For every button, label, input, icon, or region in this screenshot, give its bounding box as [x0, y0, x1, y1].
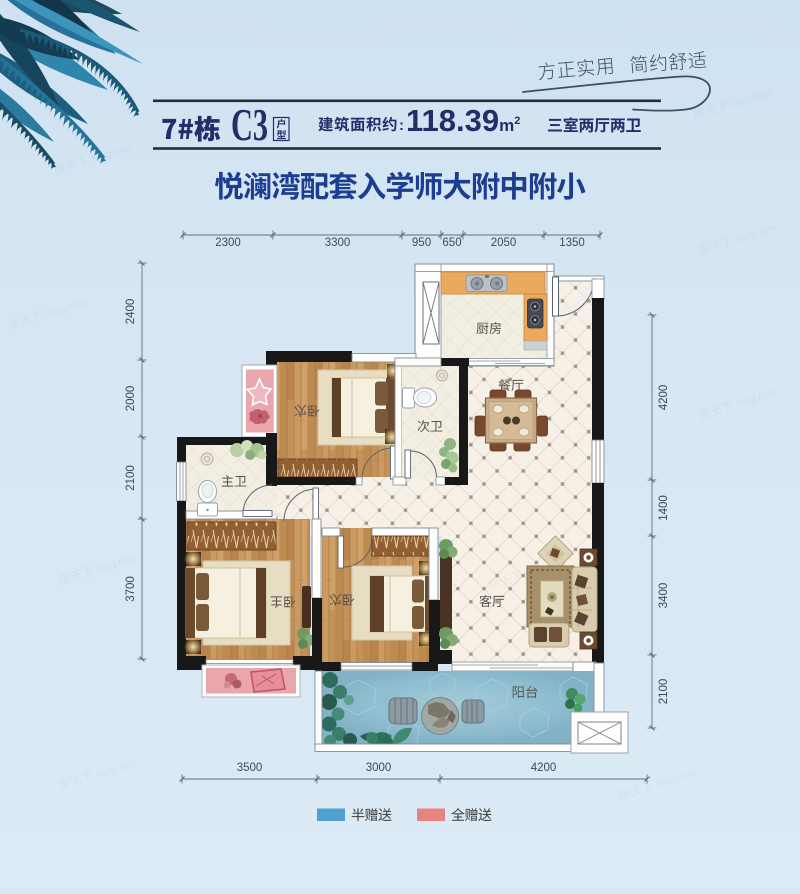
svg-text:2300: 2300: [215, 237, 241, 249]
svg-text:2050: 2050: [491, 237, 517, 249]
svg-text:3700: 3700: [125, 576, 137, 602]
svg-text:1400: 1400: [658, 495, 670, 521]
svg-text:2000: 2000: [125, 386, 137, 412]
svg-text:4200: 4200: [658, 385, 670, 411]
svg-text:3300: 3300: [325, 237, 351, 249]
svg-text:C3: C3: [231, 100, 268, 150]
svg-text:3400: 3400: [658, 583, 670, 609]
svg-text:650: 650: [442, 237, 461, 249]
svg-text:2400: 2400: [125, 299, 137, 325]
svg-text:2100: 2100: [125, 465, 137, 491]
svg-text:2100: 2100: [658, 679, 670, 705]
svg-text:950: 950: [412, 237, 431, 249]
svg-text:4200: 4200: [531, 762, 557, 774]
svg-text:3500: 3500: [237, 762, 263, 774]
svg-text:1350: 1350: [559, 237, 585, 249]
svg-text:3000: 3000: [366, 762, 392, 774]
svg-text::: :: [399, 117, 404, 134]
